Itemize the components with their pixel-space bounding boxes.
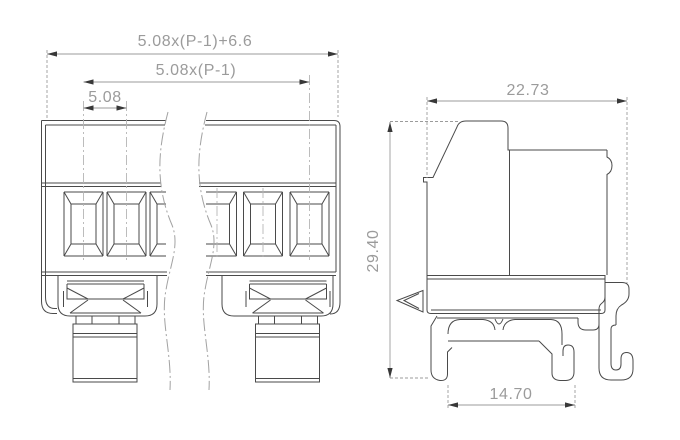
dim-total-width: 5.08x(P-1)+6.6	[138, 33, 253, 50]
left-foot	[431, 316, 452, 381]
side-view	[397, 121, 633, 381]
wire-clamp-module-right	[222, 276, 333, 382]
dim-height: 29.40	[365, 229, 382, 272]
din-clamp-band	[427, 276, 605, 314]
dimensions	[47, 50, 627, 410]
break-lines	[160, 112, 214, 390]
dim-pitch: 5.08	[88, 89, 122, 106]
dim-depth: 22.73	[506, 82, 549, 99]
terminal-block-drawing: 5.08x(P-1)+6.6 5.08x(P-1) 5.08 22.73 29.…	[0, 0, 680, 440]
terminal-openings	[64, 192, 329, 256]
rail-arches	[437, 318, 578, 334]
dimension-arrows	[47, 51, 627, 407]
dim-pitch-span: 5.08x(P-1)	[156, 62, 237, 79]
hook-bridge	[578, 318, 599, 330]
housing-right-edge	[607, 150, 612, 275]
dim-rail-slot-width: 14.70	[489, 386, 532, 403]
front-view	[42, 121, 341, 383]
din-hook	[599, 283, 633, 381]
right-foot	[539, 334, 574, 381]
wire-clamp-module-left	[58, 276, 157, 382]
housing-profile	[424, 121, 608, 275]
drawing-canvas: 5.08x(P-1)+6.6 5.08x(P-1) 5.08 22.73 29.…	[0, 0, 680, 440]
